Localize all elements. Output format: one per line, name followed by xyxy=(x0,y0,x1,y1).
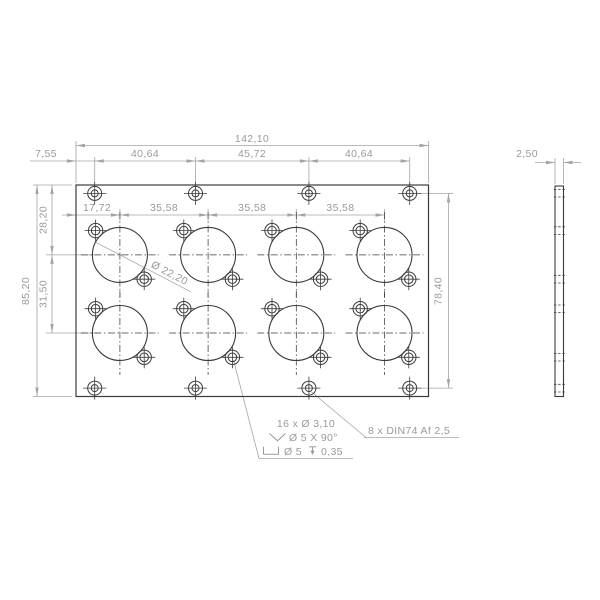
arrowhead xyxy=(111,213,120,216)
arrowhead xyxy=(447,193,450,202)
technical-drawing: 142,10 7,55 40,64 45,72 40,64 17,72 35,5… xyxy=(0,0,600,600)
arrowhead xyxy=(208,213,217,216)
plate-side-view-outline xyxy=(555,186,564,397)
arrowhead xyxy=(447,379,450,388)
arrowhead xyxy=(50,185,53,194)
arrowhead xyxy=(287,213,296,216)
dim-label-column-spacing-1: 35,58 xyxy=(150,202,178,214)
dim-label-column-spacing-2: 35,58 xyxy=(238,202,266,214)
dim-label-mount-spacing-1: 40,64 xyxy=(131,148,159,160)
dim-label-thickness: 2,50 xyxy=(516,148,538,160)
countersink-icon xyxy=(270,434,286,441)
arrowhead xyxy=(376,213,385,216)
plate-front-view-outline xyxy=(76,185,429,397)
arrowhead xyxy=(95,159,104,162)
dim-label-edge-margin: 7,55 xyxy=(35,148,57,160)
dimension-line xyxy=(311,392,366,438)
arrowhead xyxy=(196,159,205,162)
arrowhead xyxy=(309,159,318,162)
dim-label-overall-height: 85,20 xyxy=(20,277,32,305)
dimension-line xyxy=(96,242,191,292)
arrowhead xyxy=(546,161,555,164)
note-countersink: Ø 5 X 90° xyxy=(289,432,338,444)
counterbore-icon xyxy=(264,447,279,454)
note-small-holes-count: 16 x Ø 3,10 xyxy=(277,418,335,430)
arrowhead xyxy=(564,161,573,164)
dim-label-row-spacing: 31,50 xyxy=(38,280,50,308)
arrowhead xyxy=(67,159,76,162)
note-counterbore-depth: 0,35 xyxy=(321,446,343,458)
dim-label-mount-vertical-spacing: 78,40 xyxy=(433,277,445,305)
arrowhead xyxy=(420,144,429,147)
cad-drawing-page: 142,10 7,55 40,64 45,72 40,64 17,72 35,5… xyxy=(0,0,600,600)
arrowhead xyxy=(50,255,53,264)
arrowhead xyxy=(67,213,76,216)
arrowhead xyxy=(50,246,53,255)
dimension-line xyxy=(234,360,260,459)
note-counterbore-diameter: Ø 5 xyxy=(284,446,302,458)
dim-label-first-column-offset: 17,72 xyxy=(83,202,111,214)
arrowhead xyxy=(50,324,53,333)
arrowhead xyxy=(300,159,309,162)
dim-label-first-row-offset: 28,20 xyxy=(38,206,50,234)
arrowhead xyxy=(199,213,208,216)
depth-icon xyxy=(309,447,316,455)
note-din-mount: 8 x DIN74 Af 2,5 xyxy=(368,425,450,437)
dim-label-mount-spacing-3: 40,64 xyxy=(345,148,373,160)
arrowhead xyxy=(296,213,305,216)
arrowhead xyxy=(120,213,129,216)
holes-geometry xyxy=(81,182,566,400)
arrowhead xyxy=(401,159,410,162)
arrowhead xyxy=(76,144,85,147)
arrowhead xyxy=(187,159,196,162)
arrowhead xyxy=(35,185,38,194)
dim-label-overall-width: 142,10 xyxy=(235,133,269,145)
arrowhead xyxy=(35,388,38,397)
dim-label-column-spacing-3: 35,58 xyxy=(326,202,354,214)
dimension-graphics xyxy=(30,141,581,459)
dim-label-mount-spacing-2: 45,72 xyxy=(238,148,266,160)
